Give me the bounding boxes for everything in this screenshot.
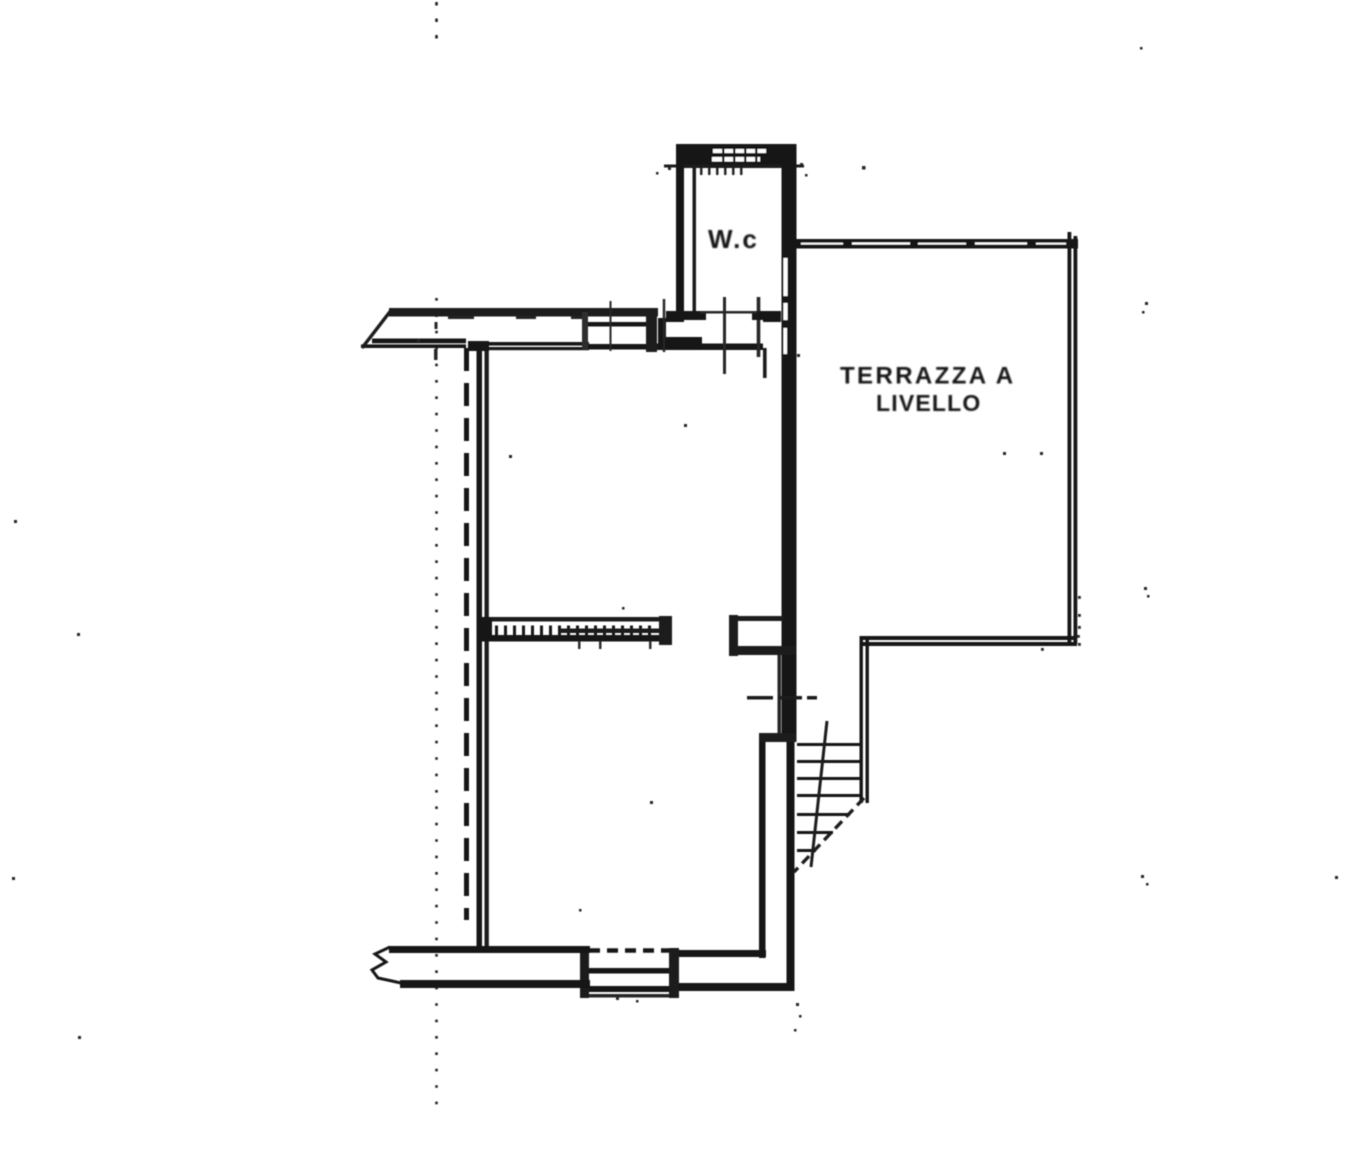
svg-text:TERRAZZA A: TERRAZZA A xyxy=(840,363,1016,390)
svg-text:LIVELLO: LIVELLO xyxy=(876,390,982,416)
svg-text:W.c: W.c xyxy=(708,224,759,254)
